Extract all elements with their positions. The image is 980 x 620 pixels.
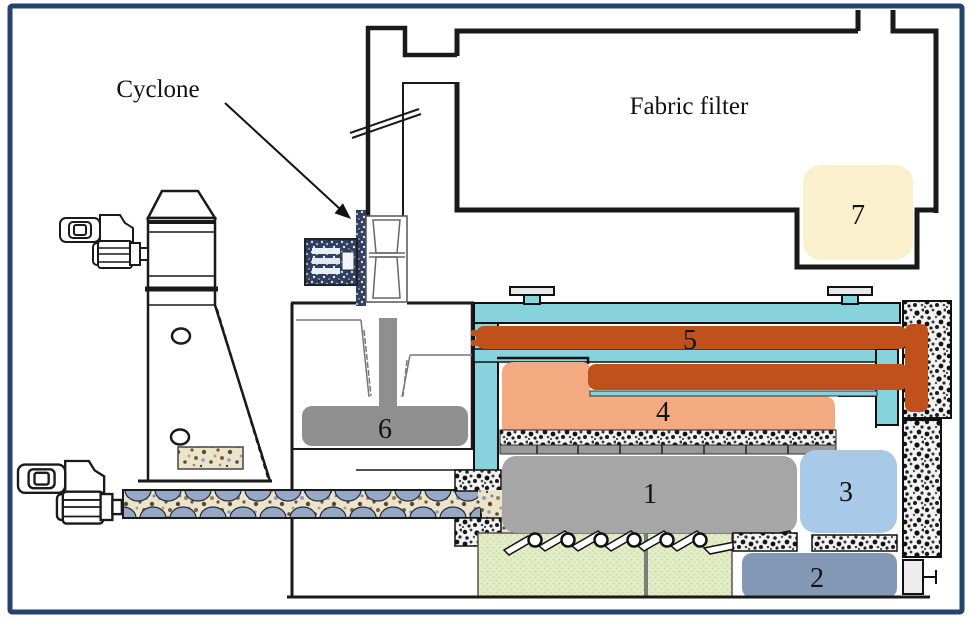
inlet-duct-inner	[403, 83, 457, 216]
coil-circle	[694, 534, 707, 547]
heater-manifold	[905, 324, 928, 412]
component-number-4: 4	[656, 397, 670, 428]
feeder-stem	[379, 318, 397, 410]
component-number-1: 1	[643, 479, 657, 510]
coil-circle	[595, 534, 608, 547]
shell-port-left	[510, 287, 554, 304]
end-drive-motor	[903, 560, 936, 594]
shell-top	[474, 303, 900, 323]
tower-porthole-upper	[172, 329, 190, 344]
insulation-patch-b	[812, 535, 897, 551]
shell-port-right	[828, 287, 872, 304]
heater-tube-lower	[588, 364, 908, 390]
component-number-7: 7	[851, 200, 865, 231]
schematic-figure: 7 Cyclone Fabric filter	[0, 0, 980, 620]
tower-porthole-lower	[171, 430, 189, 445]
insulation-patch-a	[733, 533, 797, 551]
coil-circle	[628, 534, 641, 547]
screw-conveyor	[123, 490, 481, 518]
cyclone-arrow	[225, 103, 351, 219]
tower-drive-motor	[60, 215, 148, 268]
cyclone-valve	[305, 210, 407, 306]
insulation-right-lower	[903, 420, 941, 557]
component-number-2: 2	[810, 563, 824, 594]
cyclone-tower	[138, 191, 272, 481]
coil-circle	[529, 534, 542, 547]
fabric-filter-label: Fabric filter	[630, 93, 749, 120]
duct-break-mark	[350, 109, 419, 133]
kiln-schematic-svg: 7 Cyclone Fabric filter	[0, 0, 980, 620]
support-rail	[500, 445, 836, 454]
tower-sight-glass	[178, 447, 243, 469]
conveyor-motor	[18, 461, 122, 524]
component-number-5: 5	[683, 325, 697, 356]
coil-circle	[562, 534, 575, 547]
inlet-insulation-upper	[455, 470, 501, 491]
feed-housing: 6	[291, 303, 474, 597]
refractory-band	[500, 430, 836, 445]
cyclone-label: Cyclone	[116, 76, 199, 103]
liner-strip	[590, 391, 877, 396]
coil-circle	[661, 534, 674, 547]
component-number-6: 6	[378, 414, 392, 445]
component-number-3: 3	[839, 477, 853, 508]
